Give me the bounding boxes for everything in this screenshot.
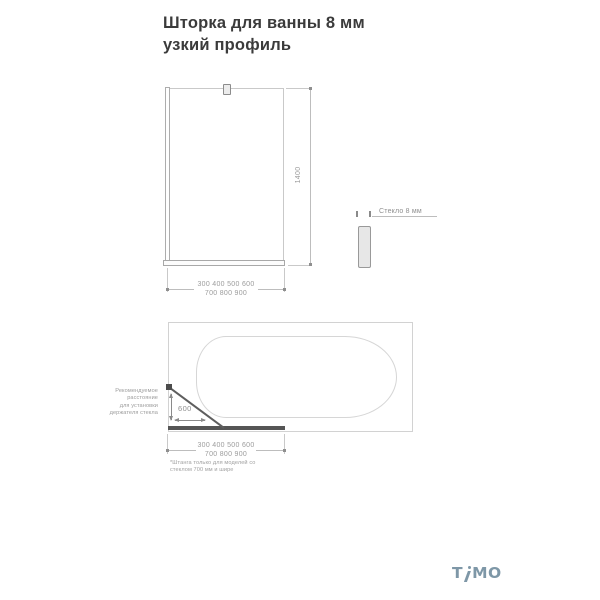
glass-thickness-label: Стекло 8 мм: [379, 208, 422, 215]
logo-slash-icon: [464, 566, 471, 581]
footnote-line: стеклом 700 мм и шире: [170, 467, 255, 474]
wall-profile-bar: [165, 87, 170, 265]
footnote-line: *Штанга только для моделей со: [170, 460, 255, 467]
holder-placement-note: Рекомендуемое расстояние для установки д…: [96, 388, 158, 418]
width-dim-row2: 700 800 900: [168, 289, 284, 298]
page-title: Шторка для ванны 8 мм узкий профиль: [163, 12, 413, 56]
glass-holder-bracket: [223, 84, 231, 95]
width-dim-row1: 300 400 500 600: [168, 280, 284, 289]
holder-note-line: расстояние: [96, 395, 158, 402]
dim-end-marker: [309, 263, 312, 266]
width-dim-row2: 700 800 900: [168, 450, 284, 459]
bathtub-basin-outline: [196, 336, 397, 418]
rod-wall-anchor: [166, 384, 172, 390]
holder-note-line: Рекомендуемое: [96, 388, 158, 395]
holder-note-line: для установки: [96, 403, 158, 410]
holder-note-line: держателя стекла: [96, 410, 158, 417]
holder-distance-arrow-icon: [171, 394, 172, 420]
thickness-tick: [369, 211, 371, 217]
bottom-profile-bar: [163, 260, 285, 266]
thickness-tick: [356, 211, 358, 217]
logo-letter-t: T: [452, 566, 463, 581]
rod-footnote: *Штанга только для моделей со стеклом 70…: [170, 460, 255, 474]
glass-label-leader-line: [372, 216, 437, 217]
dim-end-marker: [309, 87, 312, 90]
width-dimension-label-top-view: 300 400 500 600 700 800 900: [168, 441, 284, 459]
glass-cross-section: [358, 226, 371, 268]
height-dimension-label: 1400: [295, 160, 305, 190]
glass-panel-outline: [168, 88, 284, 264]
width-dimension-label: 300 400 500 600 700 800 900: [168, 280, 284, 298]
height-dimension-line: [310, 88, 311, 266]
rod-distance-arrow-icon: [175, 420, 205, 421]
width-dim-row1: 300 400 500 600: [168, 441, 284, 450]
rod-distance-label: 600: [178, 404, 192, 413]
logo-letters-mo: MO: [472, 566, 502, 581]
glass-screen-plan: [168, 426, 285, 430]
product-spec-sheet: Шторка для ванны 8 мм узкий профиль 1400…: [0, 0, 600, 600]
brand-logo: T MO: [452, 566, 502, 581]
